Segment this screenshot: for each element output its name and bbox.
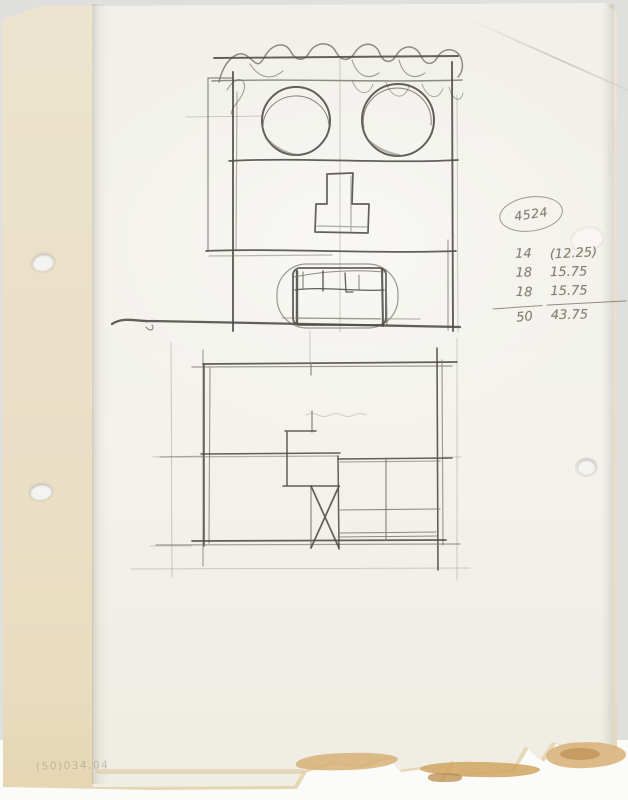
- tally-amount: 15.75: [550, 264, 628, 280]
- tally-table: 14 (12.25) 18 15.75 18 15.75 50 43.75: [488, 245, 628, 247]
- tally-row: 18 15.75: [488, 264, 628, 285]
- tally-qty: 18: [494, 284, 533, 300]
- handwritten-notes: 4524 14 (12.25) 18 15.75 18 15.75 50 43.…: [487, 193, 628, 341]
- bottom-edge-stain: [428, 773, 462, 782]
- sheet-right-edge-shadow: [596, 4, 614, 746]
- top-sheet-left-edge-shadow: [92, 4, 109, 784]
- tally-amount-total: 43.75: [551, 307, 628, 323]
- archive-stamp: (50)034.04: [36, 759, 109, 772]
- tally-qty: 18: [494, 265, 532, 281]
- circled-number-text: 4524: [513, 204, 549, 224]
- tally-amount: 15.75: [550, 283, 628, 299]
- tally-amount: (12.25): [549, 243, 628, 262]
- tally-qty-underline: [493, 305, 543, 310]
- tally-qty: 14: [494, 246, 532, 262]
- tally-row: 14 (12.25): [488, 245, 628, 266]
- scanned-sheet-scene: 4524 14 (12.25) 18 15.75 18 15.75 50 43.…: [0, 0, 628, 800]
- punch-hole-right: [577, 459, 596, 475]
- bottom-edge-stain: [96, 769, 304, 774]
- tally-qty-total: 50: [494, 309, 533, 327]
- circled-number: 4524: [497, 192, 565, 236]
- bottom-edge-stain: [560, 748, 600, 760]
